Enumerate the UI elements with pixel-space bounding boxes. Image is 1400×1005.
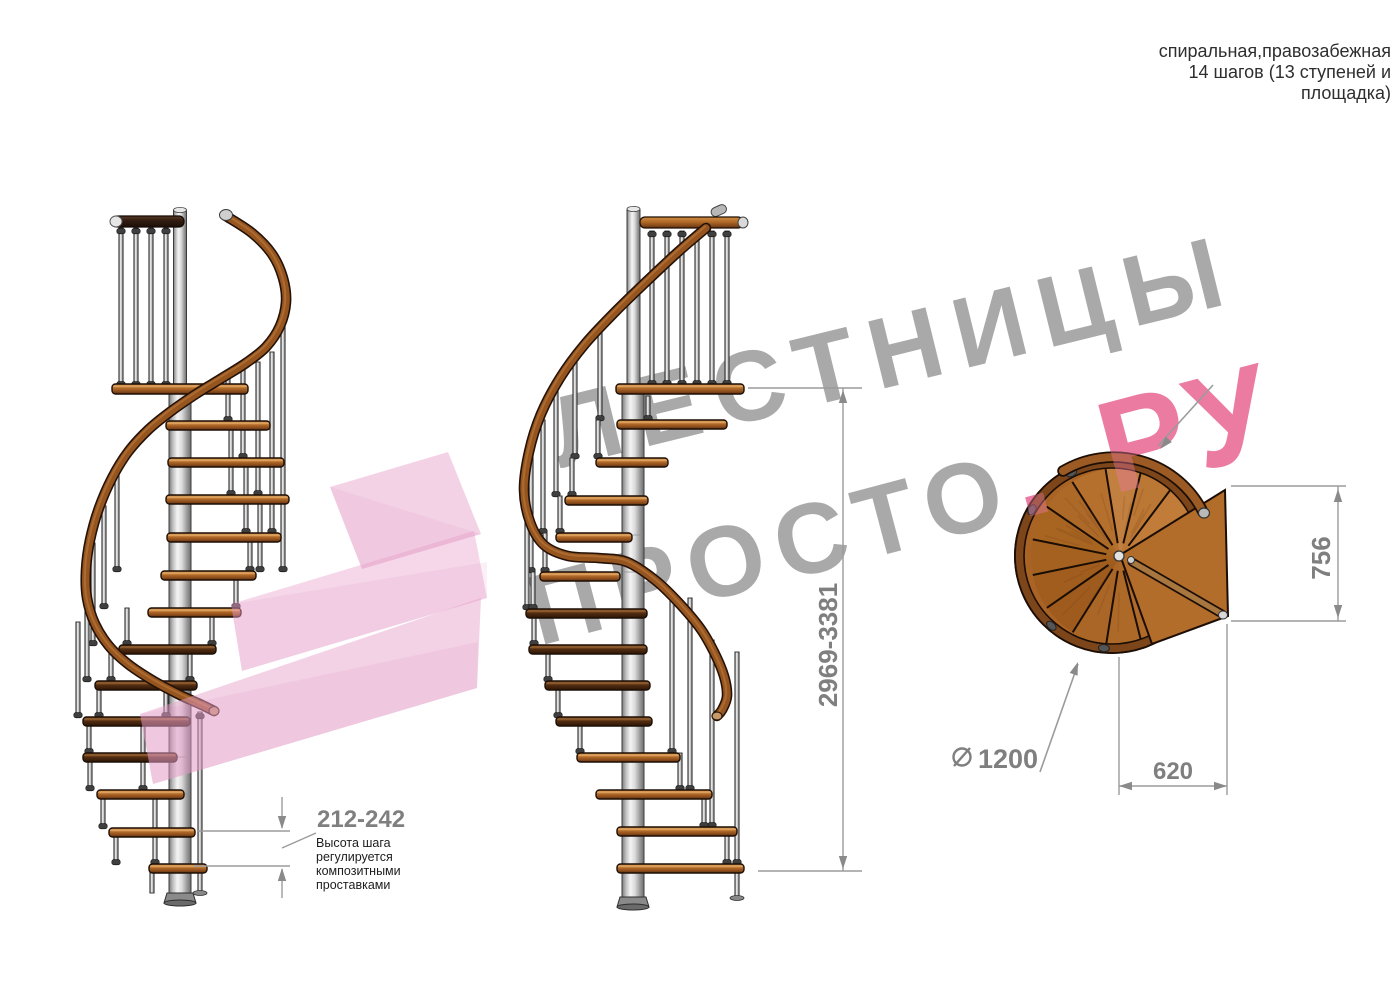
svg-text:регулируется: регулируется [316,850,393,864]
svg-text:2969-3381: 2969-3381 [813,583,843,707]
svg-text:14 шагов (13 ступеней и: 14 шагов (13 ступеней и [1189,62,1392,82]
svg-text:площадка): площадка) [1301,83,1391,103]
svg-text:композитными: композитными [316,864,401,878]
svg-text:1200: 1200 [978,744,1038,774]
svg-text:212-242: 212-242 [317,806,405,833]
svg-text:756: 756 [1306,536,1336,579]
svg-text:Высота шага: Высота шага [316,836,391,850]
svg-text:спиральная,правозабежная: спиральная,правозабежная [1159,41,1391,61]
svg-text:620: 620 [1153,758,1193,785]
svg-text:проставками: проставками [316,878,390,892]
